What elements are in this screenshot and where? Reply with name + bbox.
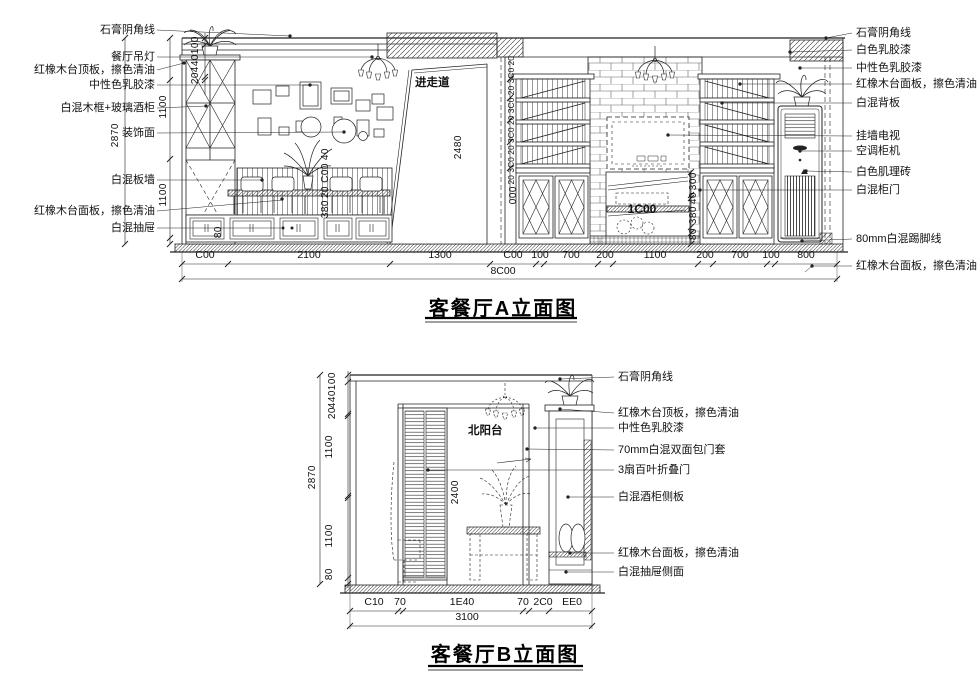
dimension-value: C00 <box>499 250 527 261</box>
callout-label: 红橡木台顶板，擦色清油 <box>34 64 155 76</box>
callout-label: 白混木框+玻璃酒柜 <box>61 102 155 114</box>
callout-label: 白混酒柜侧板 <box>618 491 684 503</box>
dimension-value: 20 <box>320 186 331 198</box>
dimension-value: C00 <box>191 250 219 261</box>
dimension-value: 1100 <box>324 435 335 459</box>
cad-elevation-sheet: 石膏阴角线 餐厅吊灯 红橡木台顶板，擦色清油 中性色乳胶漆 白混木框+玻璃酒柜 … <box>0 0 980 693</box>
room-label: 进走道 <box>415 74 450 90</box>
callout-label: 80mm白混踢脚线 <box>856 233 942 245</box>
callout-label: 挂墙电视 <box>856 130 900 142</box>
dimension-value: 1100 <box>324 524 335 548</box>
dimension-value: C00 <box>320 163 331 183</box>
callout-label: 白混抽屉 <box>111 222 155 234</box>
drawing-a-title: 客餐厅A立面图 <box>418 292 588 321</box>
louver-folding-door <box>391 408 447 582</box>
total-dimension: 2870 <box>110 123 121 147</box>
right-shelf-unit <box>698 74 780 244</box>
drawing-b-title: 客餐厅B立面图 <box>420 638 590 667</box>
dimension-value: 1100 <box>158 183 169 207</box>
dimension-value: 2400 <box>450 480 461 504</box>
total-dimension: 2870 <box>307 465 318 489</box>
dimension-value: 200 <box>591 250 619 261</box>
dimension-value: 20 <box>190 72 201 84</box>
callout-label: 红橡木台面板，擦色清油 <box>34 205 155 217</box>
dimension-value: C10 <box>360 597 388 608</box>
dimension-value: EE0 <box>559 597 585 608</box>
dimension-value: 200 <box>691 250 719 261</box>
callout-label: 石膏阴角线 <box>856 27 911 39</box>
dimension-value: 1E40 <box>448 597 476 608</box>
dimension-value: 440 <box>190 54 201 72</box>
dimension-chain: 20 3C0 20 3C0 20 3C0 20 3C0 20 <box>506 56 517 185</box>
callout-label: 红橡木台面板，擦色清油 <box>856 260 977 272</box>
callout-label: 70mm白混双面包门套 <box>618 444 726 456</box>
dimension-value: 100 <box>759 250 783 261</box>
callout-label: 装饰面 <box>122 127 155 139</box>
dimension-value: 1100 <box>158 95 169 119</box>
callout-label: 中性色乳胶漆 <box>856 62 922 74</box>
dimension-value: 2C0 <box>530 597 556 608</box>
dimension-value: 20 <box>327 407 338 419</box>
callout-label: 餐厅吊灯 <box>111 51 155 63</box>
dimension-value: 40 <box>320 148 331 160</box>
dimension-value: 80 <box>324 568 335 580</box>
dimension-value: 000 <box>508 186 519 204</box>
air-conditioner-cabinet <box>776 57 832 244</box>
left-shelf-unit <box>512 74 594 244</box>
dimension-value: 1C00 <box>622 204 662 215</box>
dimension-value: 100 <box>327 372 338 390</box>
dimension-value: 700 <box>557 250 585 261</box>
dimension-value: 380 <box>320 200 331 218</box>
callout-label: 白混柜门 <box>856 184 900 196</box>
callout-label: 红橡木台顶板，擦色清油 <box>618 407 739 419</box>
callout-label: 白色乳胶漆 <box>856 44 911 56</box>
callout-label: 白混抽屉侧面 <box>618 566 684 578</box>
dimension-value: 80 <box>213 226 224 238</box>
dimension-value: 1100 <box>641 250 669 261</box>
dimension-value: 80 <box>688 228 699 240</box>
callout-label: 空调柜机 <box>856 145 900 157</box>
dimension-value: 100 <box>190 36 201 54</box>
callout-label: 中性色乳胶漆 <box>618 422 684 434</box>
callout-label: 中性色乳胶漆 <box>89 79 155 91</box>
total-dimension: 8C00 <box>485 266 521 277</box>
slat-wall-and-table <box>228 140 392 215</box>
dimension-value: 440 <box>327 390 338 408</box>
callout-label: 白色肌理砖 <box>856 166 911 178</box>
dimension-value: 2480 <box>453 135 464 159</box>
dimension-value: 100 <box>528 250 552 261</box>
dimension-value: 700 <box>726 250 754 261</box>
dimension-value: 800 <box>792 250 820 261</box>
callout-label: 红橡木台面板，擦色清油 <box>618 547 739 559</box>
room-label: 北阳台 <box>468 422 503 438</box>
dimension-value: 2100 <box>295 250 323 261</box>
callout-label: 白混背板 <box>856 97 900 109</box>
picture-frame-wall <box>253 82 393 143</box>
dimension-value: 1300 <box>426 250 454 261</box>
callout-label: 红橡木台面板，擦色清油 <box>856 78 977 90</box>
dimension-value: 380 <box>688 206 699 224</box>
dimension-value: 300 <box>688 172 699 190</box>
callout-label: 3扇百叶折叠门 <box>618 464 690 476</box>
dimension-value: 70 <box>388 597 412 608</box>
callout-label: 石膏阴角线 <box>100 24 155 36</box>
callout-label: 石膏阴角线 <box>618 371 673 383</box>
callout-label: 白混板墙 <box>111 174 155 186</box>
dimension-value: 40 <box>688 192 699 204</box>
total-dimension: 3100 <box>449 612 485 623</box>
